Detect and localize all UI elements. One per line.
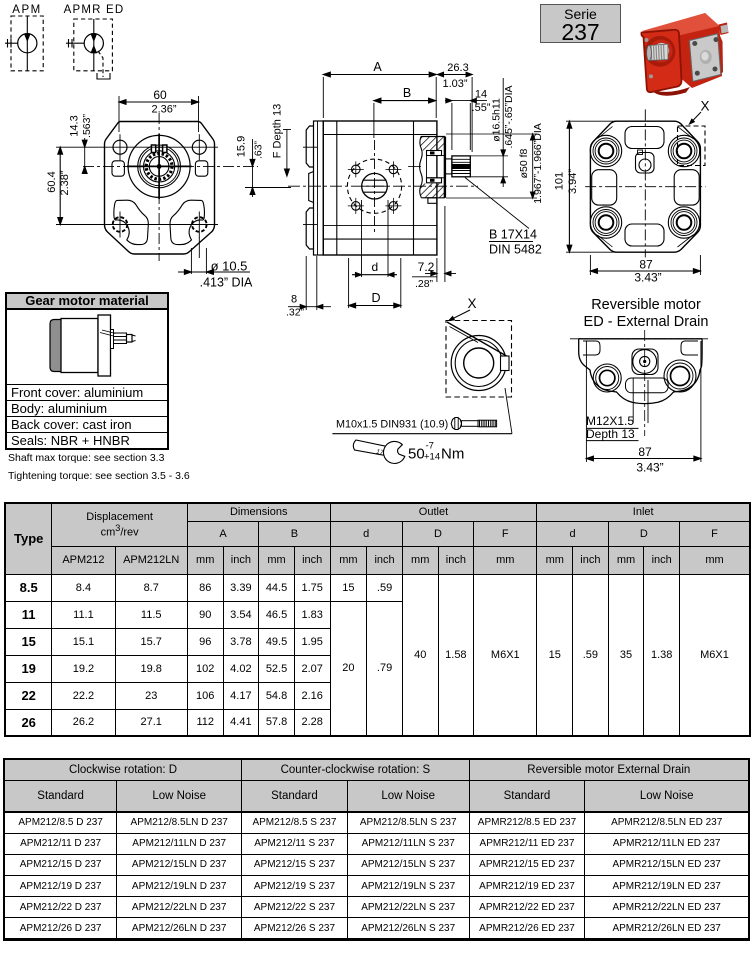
svg-text:2.36”: 2.36” <box>151 104 176 116</box>
svg-text:3.43”: 3.43” <box>636 461 663 475</box>
svg-text:60.4: 60.4 <box>46 171 58 192</box>
svg-text:87: 87 <box>639 257 653 271</box>
svg-text:X: X <box>467 296 476 311</box>
svg-text:14: 14 <box>475 89 487 101</box>
svg-text:15.9: 15.9 <box>236 136 248 157</box>
svg-text:M10x1.5 DIN931 (10.9): M10x1.5 DIN931 (10.9) <box>336 419 448 431</box>
svg-text:X: X <box>700 99 709 114</box>
svg-text:ø 10.5: ø 10.5 <box>211 259 248 274</box>
svg-text:d: d <box>371 260 378 274</box>
svg-text:ø16.5h11: ø16.5h11 <box>491 98 503 142</box>
svg-text:ø50 f8: ø50 f8 <box>518 148 530 178</box>
svg-text:2.38”: 2.38” <box>59 170 71 195</box>
svg-text:26.3: 26.3 <box>447 62 468 74</box>
svg-text:A: A <box>373 60 382 74</box>
svg-text:.563”: .563” <box>81 114 93 138</box>
svg-text:14.3: 14.3 <box>69 115 81 136</box>
svg-text:101: 101 <box>554 172 566 190</box>
svg-text:.63”: .63” <box>253 140 265 159</box>
svg-text:B 17X14: B 17X14 <box>489 228 537 242</box>
svg-text:.413” DIA: .413” DIA <box>200 276 253 290</box>
svg-text:DIN 5482: DIN 5482 <box>489 243 542 257</box>
svg-text:.28”: .28” <box>415 278 434 290</box>
svg-text:60: 60 <box>153 88 167 102</box>
svg-text:3.43”: 3.43” <box>634 271 661 285</box>
svg-text:.55”: .55” <box>472 102 491 114</box>
svg-text:-7: -7 <box>426 441 434 452</box>
svg-text:+14: +14 <box>424 452 440 463</box>
svg-text:.645”-.65”DIA: .645”-.65”DIA <box>503 85 515 148</box>
svg-text:1.967”-1.966”DIA: 1.967”-1.966”DIA <box>532 123 544 204</box>
svg-text:F Depth 13: F Depth 13 <box>272 104 284 158</box>
svg-text:87: 87 <box>638 445 652 459</box>
svg-text:Nm: Nm <box>441 446 464 463</box>
svg-text:B: B <box>403 86 411 100</box>
svg-text:APM: APM <box>12 4 41 16</box>
svg-text:Depth 13: Depth 13 <box>586 427 635 441</box>
svg-text:.32”: .32” <box>286 307 305 319</box>
svg-text:APMR ED: APMR ED <box>64 4 125 16</box>
svg-text:8: 8 <box>291 294 297 306</box>
svg-text:1.03”: 1.03” <box>442 78 467 90</box>
svg-text:50: 50 <box>408 446 425 463</box>
svg-text:D: D <box>371 291 380 305</box>
svg-text:3.94”: 3.94” <box>567 169 579 194</box>
svg-text:7.2: 7.2 <box>418 260 435 274</box>
